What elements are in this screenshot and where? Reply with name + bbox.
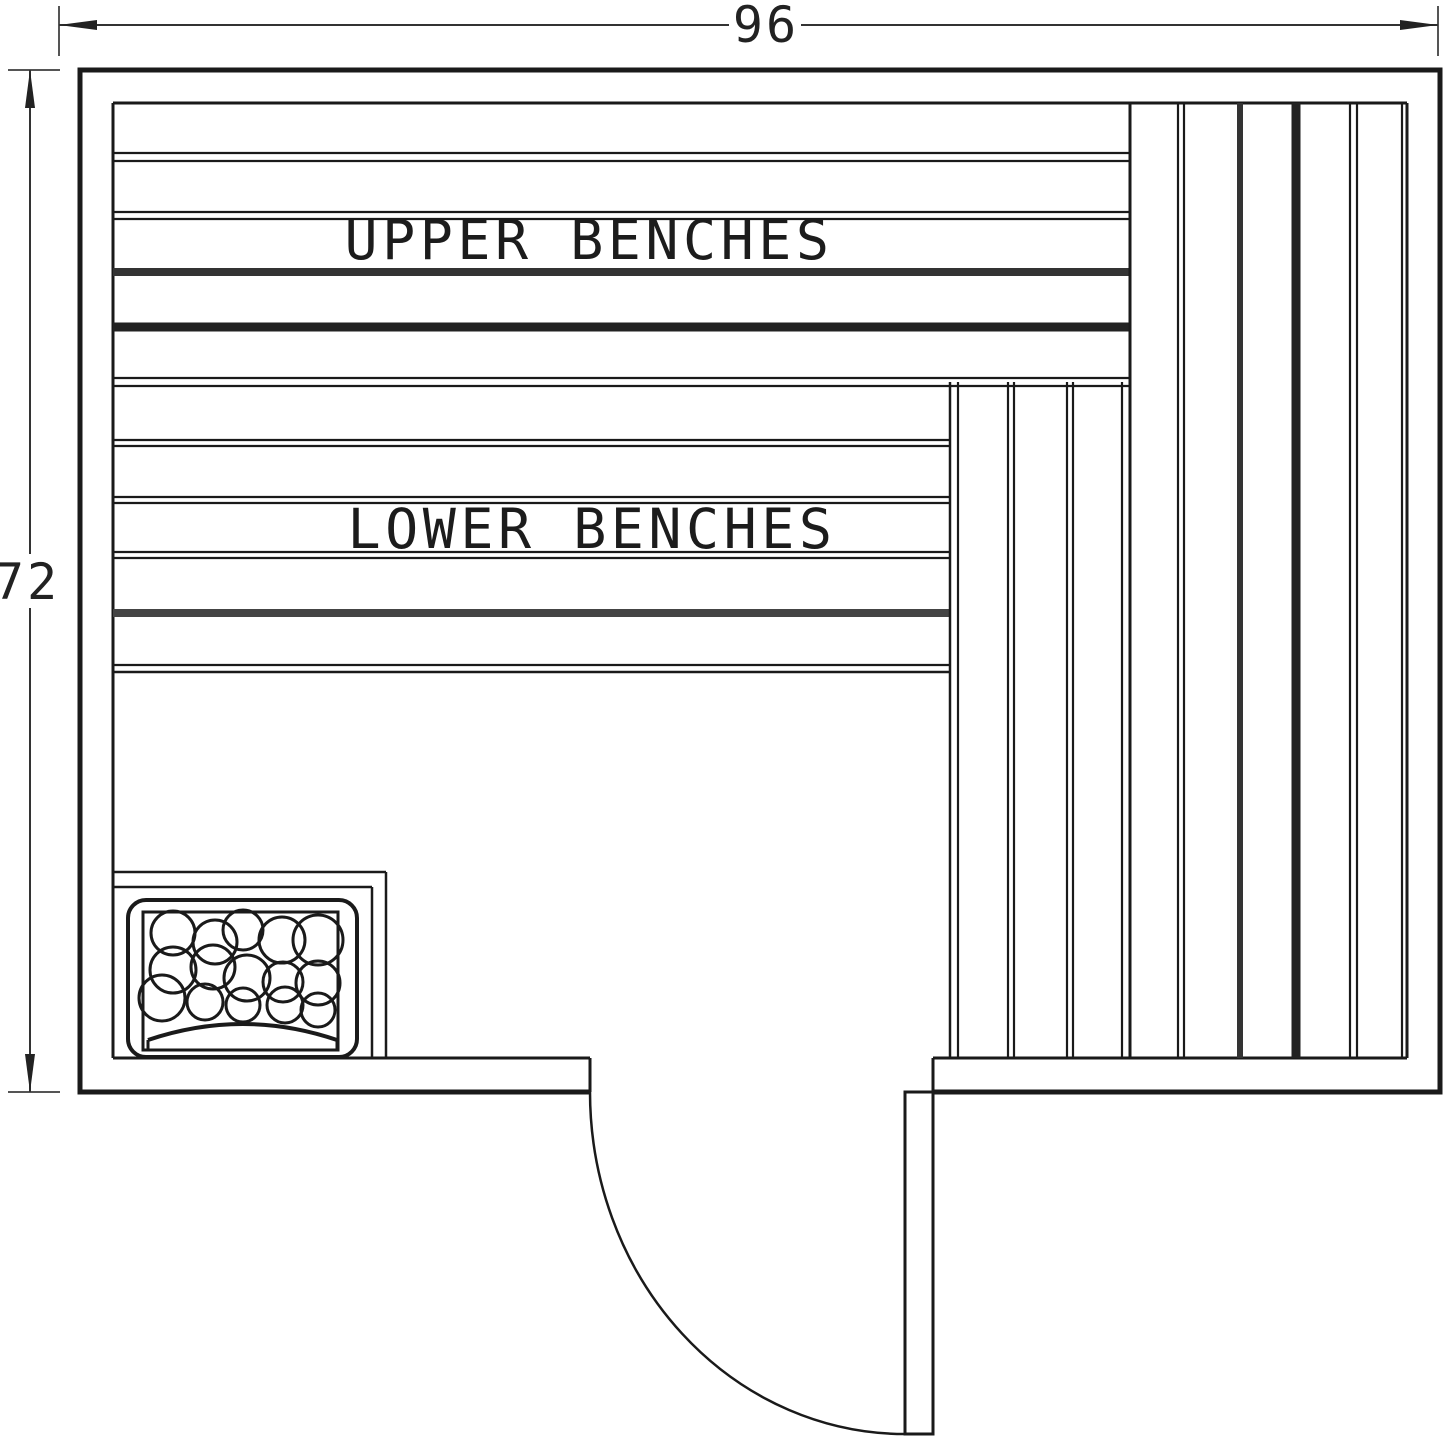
width-dimension-value: 96 [733,0,799,54]
floor-plan-svg: UPPER BENCHES LOWER BENCHES 96 72 [0,0,1445,1445]
corner-vertical-planks [950,382,1122,1058]
height-dimension-value: 72 [0,553,60,611]
door [590,1092,933,1434]
heater [113,872,386,1058]
right-vertical-planks [1130,103,1402,1058]
upper-bench-planks [113,153,1130,386]
upper-benches-label: UPPER BENCHES [345,208,834,272]
sauna-floor-plan: UPPER BENCHES LOWER BENCHES 96 72 [0,0,1445,1445]
